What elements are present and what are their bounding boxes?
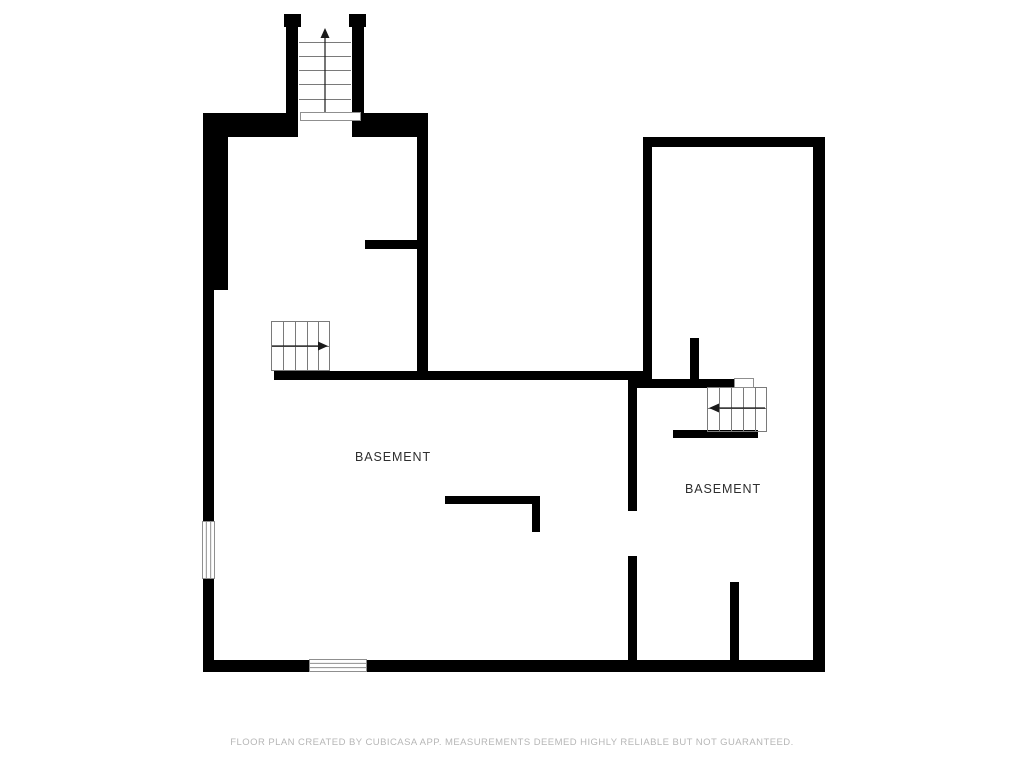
floor-plan-drawing — [0, 0, 1024, 768]
wall-segment — [643, 137, 825, 147]
wall-segment — [628, 379, 637, 511]
wall-segment — [730, 582, 739, 666]
disclaimer-text: FLOOR PLAN CREATED BY CUBICASA APP. MEAS… — [0, 737, 1024, 748]
wall-segment — [274, 371, 652, 380]
wall-segment — [690, 338, 699, 383]
top-stairs-threshold — [301, 113, 361, 121]
left-wall-window — [203, 522, 215, 579]
wall-segment — [445, 496, 540, 504]
floor-plan-canvas: BASEMENT BASEMENT FLOOR PLAN CREATED BY … — [0, 0, 1024, 768]
room-label-basement-right: BASEMENT — [685, 482, 761, 496]
stair-direction-arrow-icon — [709, 404, 719, 413]
wall-segment — [532, 496, 540, 532]
bottom-wall-window — [310, 660, 367, 672]
wall-segment — [813, 137, 825, 672]
room-label-basement-left: BASEMENT — [355, 450, 431, 464]
stair-direction-arrow-icon — [318, 342, 328, 351]
wall-segment — [352, 113, 428, 137]
wall-segment — [286, 14, 298, 115]
right-stairs-landing — [735, 379, 754, 388]
wall-segment — [203, 113, 228, 290]
stair-direction-arrow-icon — [321, 28, 330, 38]
wall-segment — [628, 556, 637, 666]
wall-segment — [365, 240, 420, 249]
wall-segment — [636, 379, 735, 388]
wall-segment — [203, 290, 214, 672]
wall-segment — [643, 137, 652, 380]
wall-segment — [352, 14, 364, 115]
